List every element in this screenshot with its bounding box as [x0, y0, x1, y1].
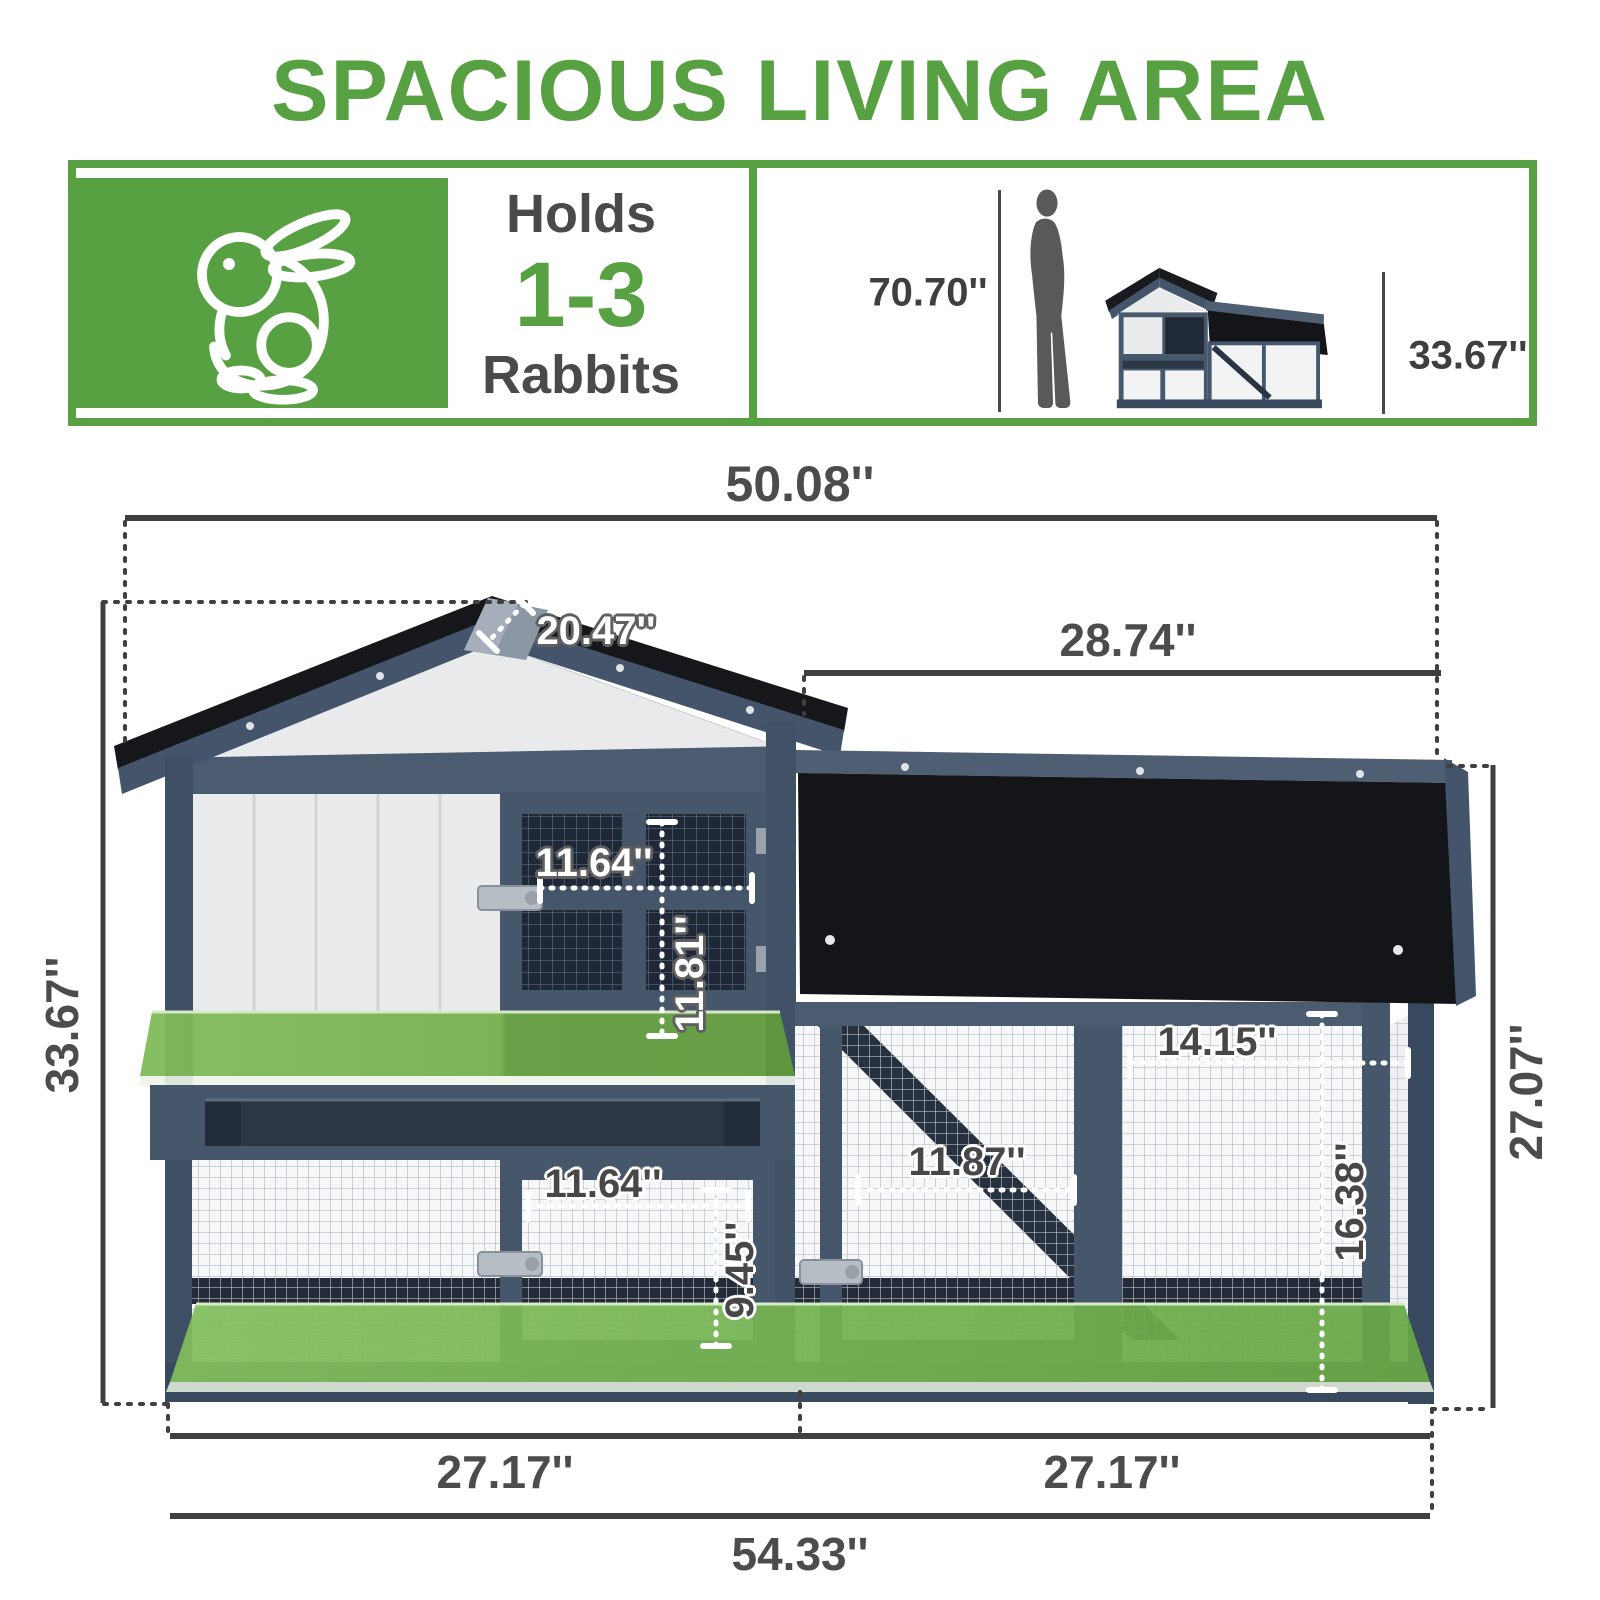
dim-run-door-width: 11.87'' — [909, 1142, 1026, 1182]
dim-run-top-width: 28.74'' — [1060, 617, 1197, 663]
dim-run-inner-height: 16.38'' — [1330, 1142, 1370, 1261]
dim-upper-door-width: 11.64'' — [536, 843, 653, 883]
dim-roof-depth: 20.47'' — [536, 611, 655, 651]
dim-right-height: 27.07'' — [1503, 1024, 1549, 1161]
run-door-latch — [800, 1260, 862, 1284]
upper-door-latch — [478, 886, 542, 910]
dim-lower-door-height: 9.45'' — [720, 1222, 760, 1319]
dim-lower-door-width: 11.64'' — [545, 1164, 662, 1204]
infographic-page: SPACIOUS LIVING AREA Holds 1-3 — [0, 0, 1600, 1600]
lower-door-latch — [478, 1252, 542, 1276]
dim-left-height: 33.67'' — [39, 957, 85, 1094]
floor-highlight — [166, 1304, 1434, 1392]
dim-total-width: 54.33'' — [732, 1531, 869, 1577]
dim-run-inner-width: 14.15'' — [1157, 1022, 1276, 1062]
dim-top-width: 50.08'' — [726, 459, 875, 509]
hutch-diagram — [0, 0, 1600, 1600]
dim-bottom-right-width: 27.17'' — [1044, 1449, 1181, 1495]
dim-bottom-left-width: 27.17'' — [437, 1449, 574, 1495]
dim-upper-door-height: 11.81'' — [670, 916, 710, 1033]
